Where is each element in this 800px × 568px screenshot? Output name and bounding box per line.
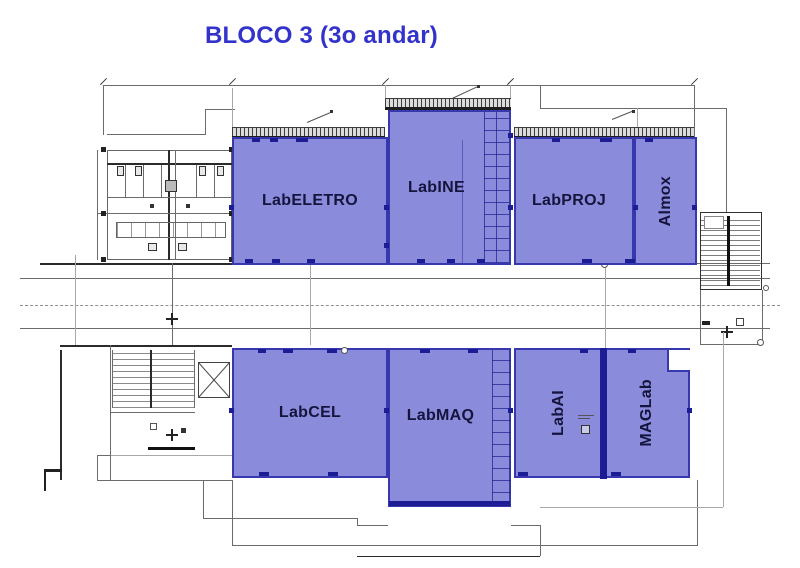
bench-counter	[116, 222, 226, 238]
fixture-icon	[702, 321, 710, 325]
outline-line	[97, 480, 232, 481]
room-label: LabCEL	[279, 404, 341, 422]
outline-line	[232, 545, 698, 546]
room-label: Almox	[657, 176, 675, 226]
stair-treads	[112, 350, 195, 408]
outline-line	[97, 455, 98, 480]
door-mark	[625, 259, 635, 263]
outline-line	[540, 108, 726, 109]
stair-note	[704, 216, 724, 229]
door-mark	[327, 349, 337, 353]
wall-line	[97, 150, 98, 260]
door-mark	[628, 349, 636, 353]
room-label: LabELETRO	[262, 192, 358, 210]
outline-line	[205, 109, 235, 110]
column-marker	[384, 205, 389, 210]
fixture-icon	[178, 243, 187, 251]
outline-top	[103, 85, 695, 86]
toilet-icon	[117, 166, 124, 176]
dim-tick	[100, 78, 107, 85]
landing-wall	[148, 447, 195, 450]
dim-tick	[382, 78, 389, 85]
column-marker	[508, 408, 513, 413]
stair-edge	[112, 350, 113, 408]
grid-line	[232, 88, 233, 129]
stair-edge	[194, 350, 195, 408]
room-labai: LabAI	[514, 348, 603, 478]
thick-wall	[600, 348, 607, 479]
outline-line	[203, 480, 204, 518]
wall-line	[97, 213, 232, 214]
door-mark	[307, 259, 315, 263]
outline-line	[205, 109, 206, 135]
door-mark	[468, 349, 478, 353]
column-marker	[384, 408, 389, 413]
door-swing-icon	[341, 347, 348, 354]
plumbing-wall	[168, 150, 170, 260]
column-marker	[692, 205, 697, 210]
toilet-icon	[217, 166, 224, 176]
fixture-icon	[148, 243, 157, 251]
column-marker	[633, 205, 638, 210]
door-mark	[252, 138, 260, 142]
plumbing-wall	[175, 150, 176, 260]
shaft-line	[496, 112, 497, 263]
note-line	[578, 415, 594, 416]
door-mark	[417, 259, 425, 263]
door-mark	[270, 138, 278, 142]
leader-line	[612, 111, 633, 120]
column-marker	[508, 205, 513, 210]
shaft-ladder	[492, 350, 511, 505]
outline-line	[540, 85, 541, 109]
duct-shaft	[165, 180, 177, 192]
outline-line	[107, 134, 206, 135]
outline-line	[103, 85, 104, 135]
outline-line	[511, 525, 540, 526]
corridor-line	[75, 255, 76, 345]
leader-dot	[477, 85, 480, 88]
stair-line	[110, 412, 195, 413]
room-labeletro: LabELETRO	[232, 137, 388, 265]
door-mark	[518, 472, 528, 476]
door-mark	[580, 349, 588, 353]
survey-cross-icon	[166, 313, 178, 325]
room-label: LabAI	[550, 390, 568, 436]
door-swing-icon	[763, 285, 769, 291]
outline-line	[540, 507, 723, 508]
door-mark	[552, 138, 560, 142]
column-marker	[687, 408, 692, 413]
column-marker	[101, 211, 106, 216]
column-marker	[508, 133, 513, 138]
room-label: LabPROJ	[532, 192, 616, 210]
door-mark	[259, 472, 269, 476]
landing-line	[762, 290, 763, 345]
door-mark	[447, 259, 455, 263]
stall-partition	[161, 165, 162, 197]
outline-line	[723, 332, 724, 507]
wall-corner	[44, 469, 62, 472]
leader-dot	[632, 110, 635, 113]
stair-divider	[150, 350, 152, 408]
corridor-line	[20, 278, 770, 279]
fixture-icon	[736, 318, 744, 326]
room-almox: Almox	[634, 137, 697, 265]
door-mark	[245, 259, 253, 263]
floor-plan: LabELETRO LabINE LabPROJ Almox LabCEL La…	[0, 0, 800, 568]
stall-partition	[196, 165, 197, 197]
column-marker	[101, 147, 106, 152]
corridor-wall	[40, 263, 232, 265]
leader-line	[307, 112, 330, 123]
wall-line	[107, 197, 232, 198]
sink-icon	[150, 204, 154, 208]
room-label: LabINE	[408, 179, 491, 197]
door-mark	[477, 259, 485, 263]
corridor-line	[310, 265, 311, 345]
note-line	[578, 418, 590, 419]
stair-divider	[727, 216, 730, 286]
door-mark	[645, 138, 653, 142]
wall-corner	[44, 469, 46, 491]
room-label: MAGLab	[638, 379, 656, 447]
outline-line	[726, 108, 727, 212]
corridor-centerline	[20, 305, 780, 306]
door-mark	[328, 472, 338, 476]
outline-line	[97, 455, 111, 456]
door-mark	[600, 138, 612, 142]
outline-line	[697, 480, 698, 545]
stall-partition	[143, 165, 144, 197]
corridor-wall	[60, 345, 232, 347]
dim-tick	[507, 78, 514, 85]
door-mark	[296, 138, 308, 142]
door-swing-icon	[757, 339, 764, 346]
door-mark	[283, 349, 293, 353]
fixture-icon	[150, 423, 157, 430]
outline-line	[540, 525, 541, 556]
corridor-line	[20, 328, 770, 329]
wall-line	[60, 350, 62, 480]
landing-line	[700, 344, 763, 345]
room-labproj: LabPROJ	[514, 137, 634, 265]
column-marker	[229, 205, 234, 210]
room-label: LabMAQ	[407, 407, 493, 449]
outline-line	[694, 85, 695, 140]
column-marker	[384, 243, 389, 248]
room-labcel: LabCEL	[232, 348, 388, 478]
outline-line	[232, 480, 233, 545]
elevator-x-icon	[198, 362, 230, 398]
column-marker	[229, 408, 234, 413]
toilet-icon	[135, 166, 142, 176]
landing-line	[700, 290, 701, 345]
equipment-icon	[581, 425, 590, 434]
fixture-icon	[181, 428, 186, 433]
door-mark	[258, 349, 266, 353]
stair-line	[110, 455, 232, 456]
door-mark	[272, 259, 280, 263]
door-mark	[611, 472, 621, 476]
corridor-line	[172, 263, 173, 345]
stall-partition	[125, 165, 126, 197]
corridor-line	[605, 265, 606, 348]
column-marker	[101, 257, 106, 262]
stall-partition	[214, 165, 215, 197]
room-notch	[667, 350, 690, 372]
dim-tick	[229, 78, 236, 85]
door-mark	[582, 259, 592, 263]
hatch-wall	[385, 98, 511, 110]
room-line	[462, 140, 463, 263]
outline-line	[203, 518, 357, 519]
survey-cross-icon	[166, 429, 178, 441]
toilet-icon	[199, 166, 206, 176]
leader-dot	[330, 110, 333, 113]
floor-plan-page: BLOCO 3 (3o andar)	[0, 0, 800, 568]
door-mark	[420, 349, 430, 353]
outline-line	[357, 525, 388, 526]
dim-tick	[691, 78, 698, 85]
sink-icon	[186, 204, 190, 208]
outline-line	[357, 556, 540, 557]
